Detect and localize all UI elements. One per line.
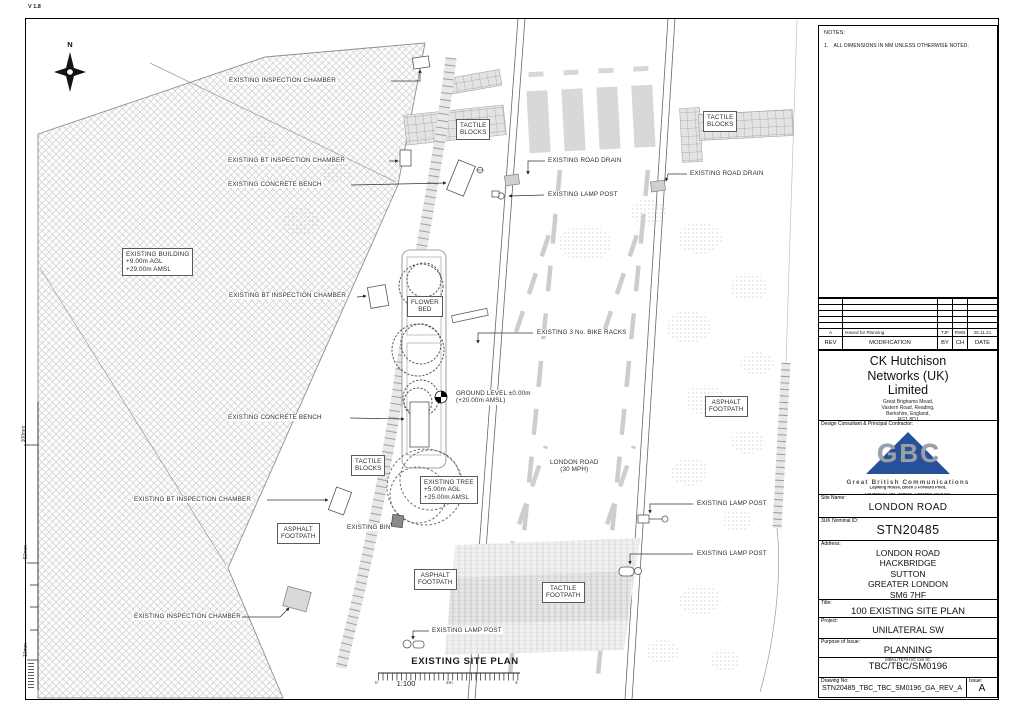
rev-header-row: REVMODIFICATIONBYCHDATE [818, 336, 998, 350]
rev-empty-row [818, 316, 998, 322]
plan-label: ASPHALTFOOTPATH [705, 396, 748, 417]
scale-ratio: 1:100 [386, 679, 426, 688]
plan-label: TACTILEFOOTPATH [542, 582, 585, 603]
site-name-panel: Site Name: LONDON ROAD [818, 494, 998, 518]
address-panel: Address: LONDON ROADHACKBRIDGESUTTONGREA… [818, 540, 998, 600]
rev-cell: MODIFICATION [843, 337, 938, 349]
rev-cell [968, 317, 997, 322]
rev-cell [938, 299, 953, 304]
rev-cell: A [819, 329, 843, 336]
cell-id-value: TBC/TBC/SM0196 [819, 661, 997, 672]
rev-cell [843, 323, 938, 328]
plan-label: EXISTING BT INSPECTION CHAMBER [133, 496, 252, 503]
rev-cell [953, 299, 968, 304]
address-line: GREATER LONDON [819, 579, 997, 590]
nominal-id-panel: 3UK Nominal ID: STN20485 [818, 517, 998, 541]
purpose-value: PLANNING [819, 645, 997, 656]
plan-label: EXISTING BT INSPECTION CHAMBER [228, 292, 347, 299]
scale-left: 0 [375, 681, 378, 686]
rev-cell [843, 311, 938, 316]
plan-label: EXISTING ROAD DRAIN [689, 170, 765, 177]
project-panel: Project: UNILATERAL SW [818, 617, 998, 639]
plan-label: EXISTING CONCRETE BENCH [227, 414, 323, 421]
plan-label: TACTILEBLOCKS [351, 455, 385, 476]
company-name-line: CK Hutchison [819, 354, 997, 369]
company-name-line: Limited [819, 383, 997, 398]
contractor-name: Great British Communications [819, 479, 997, 486]
version-label: V 1.8 [28, 4, 41, 10]
rev-cell [819, 299, 843, 304]
rev-cell [938, 323, 953, 328]
ruler-label-10mm: 10mm [23, 637, 29, 663]
project-value: UNILATERAL SW [819, 625, 997, 635]
rev-cell [843, 299, 938, 304]
drawing-sheet: { "meta": { "version": "V 1.8" }, "plan"… [0, 0, 1024, 723]
rev-cell [953, 323, 968, 328]
address-line: LONDON ROAD [819, 548, 997, 559]
plan-label: EXISTING CONCRETE BENCH [227, 181, 323, 188]
rev-cell [819, 323, 843, 328]
rev-cell: TJF [938, 329, 953, 336]
notes-heading: NOTES: [819, 26, 997, 36]
rev-empty-row [818, 310, 998, 316]
rev-cell: BY [938, 337, 953, 349]
ruler-label-50mm: 50mm [23, 539, 29, 565]
contractor-label: Design Consultant & Principal Contractor… [819, 421, 997, 428]
rev-cell [953, 311, 968, 316]
scale-mid: 2m [446, 681, 453, 686]
rev-cell: DATE [968, 337, 997, 349]
rev-cell [819, 311, 843, 316]
north-label: N [63, 40, 77, 49]
scale-right: 4 [515, 681, 518, 686]
company-address: Great Brighams Mead,Vastern Road, Readin… [819, 399, 997, 423]
address-line: HACKBRIDGE [819, 558, 997, 569]
rev-cell: 26.11.21 [968, 329, 997, 336]
plan-label: ASPHALTFOOTPATH [414, 569, 457, 590]
rev-cell: REV [819, 337, 843, 349]
plan-label: EXISTING INSPECTION CHAMBER [133, 613, 242, 620]
plan-label: EXISTING BUILDING+9.00m AGL+29.00m AMSL [122, 248, 193, 276]
issue-box: Issue: A [966, 678, 997, 697]
rev-cell: RWB [953, 329, 968, 336]
plan-label: EXISTING TREE+5.00m AGL+25.00m AMSL [420, 476, 478, 504]
rev-cell [953, 317, 968, 322]
rev-cell [968, 305, 997, 310]
plan-label: ASPHALTFOOTPATH [277, 523, 320, 544]
plan-label: EXISTING BT INSPECTION CHAMBER [227, 157, 346, 164]
plan-label: EXISTING INSPECTION CHAMBER [228, 77, 337, 84]
notes-list: 1. ALL DIMENSIONS IN MM UNLESS OTHERWISE… [819, 36, 997, 49]
rev-cell: CH [953, 337, 968, 349]
cell-id-label: MBNL/TEF/H3G Cell ID: [846, 658, 971, 662]
plan-label: TACTILEBLOCKS [703, 111, 737, 132]
title-panel: Title: 100 EXISTING SITE PLAN [818, 599, 998, 618]
contractor-panel: Design Consultant & Principal Contractor… [818, 420, 998, 495]
plan-title: EXISTING SITE PLAN [400, 656, 530, 667]
address-line: SUTTON [819, 569, 997, 580]
rev-cell [843, 305, 938, 310]
nominal-id-value: STN20485 [819, 523, 997, 537]
rev-empty-row [818, 298, 998, 304]
rev-cell [938, 305, 953, 310]
plan-label: EXISTING ROAD DRAIN [547, 157, 623, 164]
revision-table: AIssued for PlanningTJFRWB26.11.21REVMOD… [818, 298, 998, 350]
rev-cell [968, 323, 997, 328]
plan-label: GROUND LEVEL ±0.00m(+20.00m AMSL) [455, 390, 532, 405]
plan-label: EXISTING 3 No. BIKE RACKS [536, 329, 627, 336]
site-name-value: LONDON ROAD [819, 502, 997, 513]
drawing-no-panel: Drawing No: STN20485_TBC_TBC_SM0196_GA_R… [818, 677, 998, 698]
plan-label: FLOWERBED [407, 296, 443, 317]
rev-cell [819, 317, 843, 322]
rev-cell [843, 317, 938, 322]
rev-data-row: AIssued for PlanningTJFRWB26.11.21 [818, 328, 998, 336]
company-panel: CK HutchisonNetworks (UK)Limited Great B… [818, 350, 998, 421]
plan-label: EXISTING LAMP POST [547, 191, 619, 198]
plan-label: EXISTING LAMP POST [431, 627, 503, 634]
ruler-label-100mm: 100mm [21, 421, 27, 447]
rev-cell [968, 311, 997, 316]
drawing-no-value: STN20485_TBC_TBC_SM0196_GA_REV_A [819, 685, 965, 692]
rev-cell: Issued for Planning [843, 329, 938, 336]
rev-empty-row [818, 304, 998, 310]
title-value: 100 EXISTING SITE PLAN [819, 606, 997, 617]
note-item: 1. ALL DIMENSIONS IN MM UNLESS OTHERWISE… [819, 36, 997, 49]
plan-label: EXISTING BIN [346, 524, 391, 531]
plan-label: EXISTING LAMP POST [696, 550, 768, 557]
gbc-logo-text: GBC [819, 438, 999, 469]
rev-cell [968, 299, 997, 304]
rev-cell [819, 305, 843, 310]
company-name-line: Networks (UK) [819, 369, 997, 384]
purpose-panel: Purpose of Issue: PLANNING [818, 638, 998, 658]
rev-cell [938, 317, 953, 322]
rev-cell [953, 305, 968, 310]
rev-empty-row [818, 322, 998, 328]
plan-label: LONDON ROAD(30 MPH) [549, 459, 600, 474]
notes-panel: NOTES: 1. ALL DIMENSIONS IN MM UNLESS OT… [818, 25, 998, 298]
cell-id-panel: MBNL/TEF/H3G Cell ID: TBC/TBC/SM0196 [818, 657, 998, 678]
rev-cell [938, 311, 953, 316]
gbc-logo: GBC [819, 429, 997, 479]
plan-label: EXISTING LAMP POST [696, 500, 768, 507]
company-name: CK HutchisonNetworks (UK)Limited [819, 354, 997, 398]
plan-label: TACTILEBLOCKS [456, 119, 490, 140]
contractor-address-line: Lapwing House, Block 3 Forward Point, [847, 486, 968, 491]
address-lines: LONDON ROADHACKBRIDGESUTTONGREATER LONDO… [819, 548, 997, 601]
